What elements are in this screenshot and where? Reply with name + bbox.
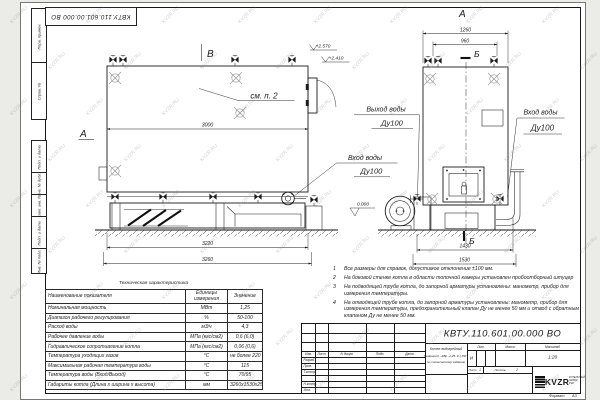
note-number: 1 [333,266,344,273]
spec-value: 4,3 [228,323,263,333]
section-label-a: А [79,129,87,140]
front-view [95,55,338,236]
dim-3260: 3260 [202,257,213,263]
section-label-b-top: Б [474,49,480,59]
role-nkontr: Н.контр. [304,382,318,386]
spec-row: Габариты котла (Длина х ширина х высота)… [46,380,263,390]
elevation-mid: +2.410 [329,56,344,62]
spec-name: Гидравлическое сопротивление котла [46,342,186,352]
inlet-front-label-2: Ду100 [360,167,383,176]
dim-3000: 3000 [202,123,214,129]
side-view [378,56,536,250]
sheet-value: 1 [479,368,481,372]
section-label-b-bottom: Б [469,236,475,246]
elevation-top: +2.570 [316,44,331,50]
spec-name: Диапазон рабочего регулирования [46,313,186,323]
col-sign: Подп. [376,352,384,356]
dim-1530: 1530 [459,258,470,264]
title-block: КВТУ.110.601.00.000 ВО Котел водогрейный… [301,323,581,394]
spec-value: 50-100 [228,313,263,323]
spec-col-value: Значение [228,290,263,304]
spec-row: Температура уходящих газов°Сне более 220 [46,351,263,361]
note-item: 3На подводящей трубе котла, до запорной … [333,284,579,298]
scale-label: Масштаб [545,345,560,349]
lit-value: И [470,356,473,361]
drawing-sheet-page: Перв. примен. Справ. № Подп. и дата Инв.… [0,0,600,400]
spec-units: МВт [186,304,228,314]
spec-name: Максимальная рабочая температура воды [46,361,186,371]
notes-list: 1Все размеры для справок, допустимое отк… [333,266,579,322]
role-utv: Утв. [304,388,311,392]
spec-row: Диапазон рабочего регулирования%50-100 [46,313,263,323]
product-name-line2: Heatexpert - КВр -1,25- К ( РЖ ) [424,354,469,358]
spec-value: 0,06 (0,6) [228,342,263,352]
product-name-line1: Котел водогрейный [430,347,462,351]
spec-col-units: Единицы измерения [186,290,228,304]
spec-value: не более 220 [228,351,263,361]
note-item: 1Все размеры для справок, допустимое отк… [333,266,579,273]
sheet-label: Лист [469,368,477,372]
spec-header-row: Наименование показателя Единицы измерени… [46,290,263,304]
sheets-label: Листов [495,368,506,372]
product-name-line3: по техническому заданию [427,360,465,364]
spec-units: МПа (кгс/см2) [186,342,228,352]
spec-row: Рабочее давление водыМПа (кгс/см2)0,6 (6… [46,332,263,342]
kvzr-logo-icon [535,376,545,388]
spec-row: Гидравлическое сопротивление котлаМПа (к… [46,342,263,352]
elevation-zero: 0.000 [357,202,369,208]
role-prov: Пров. [304,364,312,368]
spec-name: Номинальная мощность [46,304,186,314]
spec-table-title: Техническая характеристика [45,281,262,286]
note-number: 4 [333,300,344,320]
spec-name: Расход воды [46,323,186,333]
spec-table: Наименование показателя Единицы измерени… [45,289,263,390]
note-text: На подводящей трубе котла, до запорной а… [344,284,579,298]
col-doc: N докум. [341,352,354,356]
spec-name: Рабочее давление воды [46,332,186,342]
format-label: Формат [549,393,564,398]
outlet-label-1: Выход воды [366,106,406,114]
sheets-value: 2 [516,368,518,372]
note-text: Все размеры для справок, допустимое откл… [344,266,494,273]
spec-units: мм [186,380,228,390]
note-number: 2 [333,275,344,282]
role-tkontr: Т.контр. [304,370,317,374]
spec-value: 70/95 [228,371,263,381]
note-text: На отводящей трубе котла, до запорной ар… [344,300,579,320]
spec-value: 3260х1530х2570 [228,380,263,390]
dim-3220: 3220 [202,241,213,247]
spec-row: Номинальная мощностьМВт1,25 [46,304,263,314]
col-list: Лист [317,352,325,356]
note-text: На боковой стенке котла в области топочн… [344,275,573,282]
outlet-label-2: Ду100 [380,119,403,128]
spec-col-name: Наименование показателя [46,290,186,304]
mass-label: Масса [505,345,514,349]
inlet-front-label-1: Вход воды [348,154,383,162]
spec-row: Расход водым3/ч4,3 [46,323,263,333]
position-targets [109,72,503,205]
note-item: 4На отводящей трубе котла, до запорной а… [333,300,579,320]
doc-number: КВТУ.110.601.00.000 ВО [444,328,562,339]
spec-units: °С [186,361,228,371]
dim-1260: 1260 [460,28,471,34]
spec-units: % [186,313,228,323]
dim-960: 960 [461,39,470,45]
scale-value: 1:20 [548,356,557,361]
spec-units: °С [186,351,228,361]
note-item: 2На боковой стенке котла в области топоч… [333,275,579,282]
spec-row: Максимальная рабочая температура воды°С1… [46,361,263,371]
view-arrow-b: В [207,49,214,60]
spec-name: Габариты котла (Длина х ширина х высота) [46,380,186,390]
spec-name: Температура уходящих газов [46,351,186,361]
format-value: А3 [572,393,577,398]
role-razrab: Разраб. [304,358,316,362]
lit-label: Лит. [477,345,484,349]
kvzr-logo-text: KVZR [545,377,569,387]
spec-value: 0,6 (6,0) [228,332,263,342]
spec-row: Температура воды (Вход/Выход)°С70/95 [46,371,263,381]
spec-value: 115 [228,361,263,371]
kvzr-logo-subtext: КОТЕЛЬНЫЙ ЗАВОД РЭП [569,376,580,385]
col-izm: Изм. [305,352,312,356]
view-title-a: А [458,9,466,20]
spec-units: °С [186,371,228,381]
spec-units: м3/ч [186,323,228,333]
col-date: Дата [405,352,413,356]
note-ref: см. п. 2 [250,92,278,101]
inlet-side-label-1: Вход воды [524,109,559,117]
spec-name: Температура воды (Вход/Выход) [46,371,186,381]
inlet-side-label-2: Ду100 [530,124,555,133]
note-number: 3 [333,284,344,298]
spec-units: МПа (кгс/см2) [186,332,228,342]
spec-value: 1,25 [228,304,263,314]
